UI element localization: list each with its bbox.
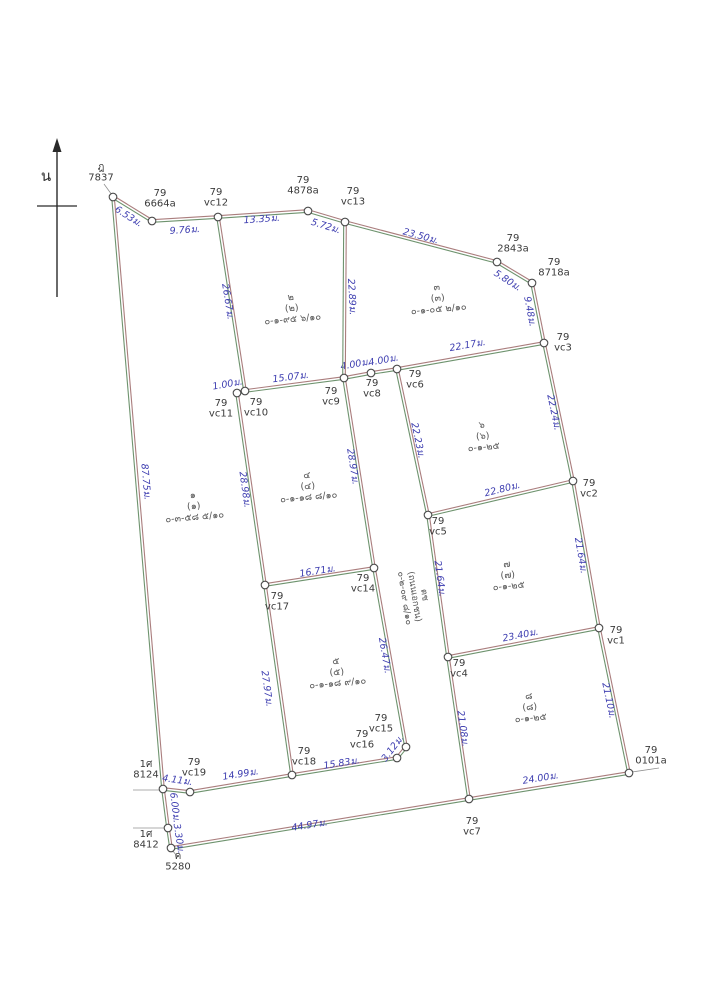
- survey-map-canvas: 6.53ม.9.76ม.13.35ม.5.72ม.23.50ม.5.80ม.9.…: [0, 0, 707, 1000]
- vertex-marker-vc13: [341, 218, 349, 226]
- distance-label-vc9-vc14: 28.97ม.: [344, 448, 361, 486]
- vertex-label-8718a: 798718a: [538, 257, 570, 279]
- distance-label-4878a-vc13: 5.72ม.: [310, 217, 342, 236]
- distance-label-vc3-vc2: 22.24ม.: [544, 393, 562, 431]
- distance-label-vc17-vc18: 27.97ม.: [258, 670, 274, 708]
- vertex-marker-vc9: [340, 374, 348, 382]
- edge-vc13-vc9-green-line: [343, 222, 344, 378]
- distance-label-vc12-4878a: 13.35ม.: [243, 213, 280, 227]
- vertex-marker-vc11: [233, 389, 241, 397]
- vertex-label-vc5: 79vc5: [429, 516, 447, 538]
- vertex-marker-8718a: [528, 279, 536, 287]
- vertex-marker-4878a: [304, 207, 312, 215]
- distance-label-2843a-8718a: 5.80ม.: [492, 268, 524, 294]
- vertex-label-vc19: 79vc19: [182, 757, 206, 779]
- vertex-label-vc17: 79vc17: [265, 591, 289, 613]
- vertex-label-vc11: 79vc11: [209, 398, 233, 420]
- distance-label-vc10-vc9: 15.07ม.: [272, 370, 310, 385]
- vertex-marker-vc6: [393, 365, 401, 373]
- vertex-label-vc15: 79vc15: [369, 713, 393, 735]
- vertex-label-vc2: 79vc2: [580, 478, 598, 500]
- distance-label-bl3-vc7: 44.97ม.: [291, 817, 329, 834]
- vertex-marker-7837: [109, 193, 117, 201]
- edge-7837-bl1-red-line: [114, 197, 164, 789]
- vertex-marker-vc16: [393, 754, 401, 762]
- vertex-label-4878a: 794878a: [287, 175, 319, 197]
- vertex-label-vc7: 79vc7: [463, 816, 481, 838]
- plot-label-๒: ๒(๒)๐-๑-๙๕ ๖/๑๐: [262, 290, 322, 328]
- distance-label-vc17-vc14: 16.71ม.: [299, 563, 337, 580]
- survey-sheet: 6.53ม.9.76ม.13.35ม.5.72ม.23.50ม.5.80ม.9.…: [0, 0, 707, 1000]
- vertex-label-vc6: 79vc6: [406, 369, 424, 391]
- distance-label-vc6-vc3: 22.17ม.: [449, 337, 487, 354]
- plot-label-๔: ๔(๔)๐-๑-๑๘ ๘/๑๐: [278, 468, 338, 506]
- leader-line: [632, 768, 659, 772]
- plot-label-๑: ๑(๑)๐-๓-๕๘ ๕/๑๐: [163, 487, 225, 525]
- distance-label-bl1-bl2: 6.00ม.: [167, 792, 182, 824]
- plot-label-๕: ๕(๕)๐-๑-๑๘ ๙/๑๐: [307, 654, 367, 692]
- vertex-marker-vc19: [186, 788, 194, 796]
- plot-label-๗: ๗(๗)๐-๑-๒๕: [490, 558, 525, 594]
- vertex-label-2843a: 792843a: [497, 233, 529, 255]
- vertex-marker-bl1: [159, 785, 167, 793]
- distance-label-vc13-vc9: 22.89ม.: [345, 278, 358, 315]
- distance-label-vc14-vc15: 26.47ม.: [376, 637, 393, 675]
- distance-label-vc2-vc1: 21.64ม.: [572, 537, 589, 575]
- vertex-marker-vc12: [214, 213, 222, 221]
- neighbor-parcel-label-5280: ค5280: [165, 851, 190, 873]
- distance-label-8718a-vc3: 9.48ม.: [521, 296, 538, 328]
- edge-7837-bl1-green-line: [112, 197, 162, 789]
- vertex-label-vc3: 79vc3: [554, 332, 572, 354]
- plot-label-๘: ๘(๘)๐-๑-๒๕: [512, 690, 547, 726]
- edge-vc13-2843a-green-line: [345, 223, 497, 263]
- vertex-label-vc13: 79vc13: [341, 186, 365, 208]
- vertex-label-vc12: 79vc12: [204, 187, 228, 209]
- neighbor-parcel-label-7837: ฎ7837: [88, 162, 113, 184]
- neighbor-parcel-label-8124: 1ศ8124: [133, 759, 158, 781]
- neighbor-parcel-label-8412: 1ศ8412: [133, 829, 158, 851]
- distance-label-vc18-vc16: 15.83ม.: [323, 755, 361, 772]
- north-arrow-head-icon: [53, 138, 62, 152]
- vertex-marker-vc18: [288, 771, 296, 779]
- edge-vc13-vc9-red-line: [345, 222, 346, 378]
- edge-bl1-bl2-green-line: [162, 789, 167, 828]
- vertex-marker-vc8: [367, 369, 375, 377]
- vertex-marker-vc4: [444, 653, 452, 661]
- plot-label-๓: ๓(๓)๐-๑-๐๕ ๒/๑๐: [408, 280, 467, 318]
- distance-label-vc1-0101a: 21.10ม.: [599, 681, 617, 719]
- vertex-marker-vc2: [569, 477, 577, 485]
- vertex-label-0101a: 790101a: [635, 745, 667, 767]
- distance-label-vc5-vc4: 21.64ม.: [431, 560, 447, 598]
- road-label: ตช(ถนนเอกชน)๐-๒-๐๙ ๘/๑๐: [395, 568, 433, 626]
- vertex-marker-vc15: [402, 743, 410, 751]
- plot-label-๖: ๖(๖)๐-๑-๒๕: [465, 419, 500, 455]
- north-label: น: [41, 167, 51, 185]
- vertex-marker-vc14: [370, 564, 378, 572]
- vertex-marker-2843a: [493, 258, 501, 266]
- vertex-marker-vc10: [241, 387, 249, 395]
- vertex-marker-vc3: [540, 339, 548, 347]
- vertex-label-vc10: 79vc10: [244, 397, 268, 419]
- vertex-label-vc1: 79vc1: [607, 625, 625, 647]
- distance-label-vc9-vc8: 4.00ม.: [340, 356, 372, 372]
- vertex-marker-vc17: [261, 581, 269, 589]
- vertex-label-vc14: 79vc14: [351, 573, 375, 595]
- distance-label-7837-bl1: 87.75ม.: [138, 463, 152, 500]
- vertex-marker-vc1: [595, 624, 603, 632]
- vertex-label-6664a: 796664a: [144, 188, 176, 210]
- vertex-marker-6664a: [148, 217, 156, 225]
- vertex-marker-bl2: [164, 824, 172, 832]
- vertex-label-vc18: 79vc18: [292, 746, 316, 768]
- vertex-label-vc8: 79vc8: [363, 378, 381, 400]
- vertex-marker-0101a: [625, 769, 633, 777]
- vertex-marker-vc7: [465, 795, 473, 803]
- distance-label-vc12-vc10: 26.67ม.: [219, 283, 236, 321]
- vertex-label-vc9: 79vc9: [322, 386, 340, 408]
- vertex-label-vc4: 79vc4: [450, 658, 468, 680]
- distance-label-6664a-vc12: 9.76ม.: [169, 224, 200, 237]
